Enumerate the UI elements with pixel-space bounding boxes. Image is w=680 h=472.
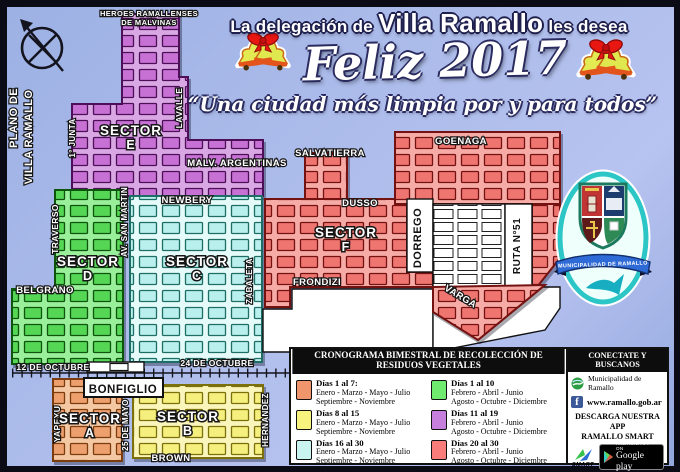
- street-label-salvatierra: SALVATIERRA: [295, 148, 365, 159]
- slogan-quote: “Una ciudad más limpia por y para todos”: [175, 92, 670, 116]
- sector-a-label: SECTOR: [59, 411, 121, 426]
- smart-logo-label: SMART: [572, 462, 594, 468]
- entry-months2: Agosto - Octubre - Diciembre: [451, 428, 547, 437]
- street-label-traverso: TRAVERSO: [50, 204, 60, 254]
- smart-logo-icon: [573, 447, 593, 462]
- municipality-row: Municipalidad de Ramallo: [568, 372, 667, 394]
- sector-c-letter: C: [192, 269, 202, 283]
- street-label-zabaleta: ZABALETA: [245, 258, 254, 304]
- street-label-dorrego: DORREGO: [412, 208, 424, 268]
- app-promo: DESCARGA NUESTRA APP RAMALLO SMART: [568, 412, 667, 442]
- street-label-frondizi: FRONDIZI: [293, 277, 341, 288]
- google-play-badge: ANDROID APP ON Google play: [599, 444, 664, 470]
- greeting-title: Feliz 2017: [269, 30, 600, 93]
- smart-app-logo: SMART: [571, 447, 595, 468]
- sector-c-label: SECTOR: [166, 254, 228, 269]
- street-label-dusso: DUSSO: [342, 198, 378, 209]
- color-swatch: [296, 380, 312, 400]
- sector-d-letter: D: [83, 269, 93, 283]
- globe-icon: [571, 377, 584, 390]
- legend-entry: Días 1 al 10 Febrero - Abril - Junio Ago…: [431, 377, 564, 407]
- street-label-heroes-2: DE MALVINAS: [121, 18, 177, 27]
- sector-b-label: SECTOR: [157, 409, 219, 424]
- play-badge-line2: Google play: [616, 451, 659, 472]
- sector-d-label: SECTOR: [57, 254, 119, 269]
- sector-e-letter: E: [126, 138, 135, 152]
- legend-entry: Días 1 al 7: Enero - Marzo - Mayo - Juli…: [296, 377, 429, 407]
- sector-e-label: SECTOR: [100, 123, 162, 138]
- street-label-junta: 1° JUNTA: [68, 118, 77, 157]
- street-label-25-mayo: 25 DE MAYO: [121, 399, 130, 451]
- street-label-san-martin: AV. SAN MARTIN: [120, 187, 129, 257]
- schedule-title: CRONOGRAMA BIMESTRAL DE RECOLECCIÓN DE R…: [292, 349, 564, 374]
- street-label-ruta51: RUTA N°51: [512, 218, 523, 274]
- street-label-hernandez: HERNANDEZ: [261, 393, 270, 447]
- sector-f-label: SECTOR: [315, 225, 377, 240]
- sector-a-letter: A: [85, 426, 95, 440]
- street-label-heroes-1: HEROES RAMALLENSES: [100, 9, 198, 18]
- sector-f-letter: F: [342, 240, 351, 254]
- play-triangle-icon: [604, 451, 613, 463]
- legend-entry: Días 20 al 30 Febrero - Abril - Junio Ag…: [431, 437, 564, 467]
- street-label-belgrano: BELGRANO: [16, 285, 74, 296]
- bottom-strip: CRONOGRAMA BIMESTRAL DE RECOLECCIÓN DE R…: [289, 347, 669, 465]
- color-swatch: [431, 410, 447, 430]
- street-label-malvinas: MALV. ARGENTINAS: [187, 158, 286, 169]
- connect-panel: CONECTATE Y BUSCANOS Municipalidad de Ra…: [568, 349, 667, 463]
- header-line1-prefix: La delegación de: [230, 17, 373, 36]
- map-title-line2: VILLA RAMALLO: [23, 90, 35, 185]
- entry-months2: Septiembre - Noviembre: [316, 398, 410, 407]
- legend-entry: Días 11 al 19 Febrero - Abril - Junio Ag…: [431, 407, 564, 437]
- app-badges-row: SMART ANDROID APP ON Google play: [568, 442, 667, 472]
- entry-months2: Agosto - Octubre - Diciembre: [451, 398, 547, 407]
- color-swatch: [296, 410, 312, 430]
- street-label-bonfiglio: BONFIGLIO: [89, 384, 157, 396]
- legend-entry: Días 16 al 30 Enero - Marzo - Mayo - Jul…: [296, 437, 429, 467]
- badge-shield: [580, 184, 626, 248]
- municipality-label: Municipalidad de Ramallo: [588, 374, 664, 392]
- color-swatch: [296, 440, 312, 460]
- municipal-badge: MUNICIPALIDAD DE RAMALLO: [554, 171, 652, 306]
- legend-entry: Días 8 al 15 Enero - Marzo - Mayo - Juli…: [296, 407, 429, 437]
- app-promo-line1: DESCARGA NUESTRA APP: [568, 412, 667, 432]
- sector-d-area: [12, 190, 123, 364]
- connect-title: CONECTATE Y BUSCANOS: [568, 349, 667, 372]
- color-swatch: [431, 440, 447, 460]
- color-swatch: [431, 380, 447, 400]
- website-row: f www.ramallo.gob.ar: [568, 394, 667, 410]
- street-label-24-octubre: 24 DE OCTUBRE: [180, 358, 253, 368]
- schedule-panel: CRONOGRAMA BIMESTRAL DE RECOLECCIÓN DE R…: [291, 349, 566, 463]
- facebook-icon: f: [571, 396, 583, 408]
- schedule-legend: Días 1 al 7: Enero - Marzo - Mayo - Juli…: [291, 374, 566, 469]
- entry-months2: Septiembre - Noviembre: [316, 428, 410, 437]
- compass-icon: [20, 19, 63, 71]
- street-label-newbery: NEWBERY: [161, 195, 212, 206]
- sector-b-letter: B: [183, 424, 193, 438]
- street-label-12-octubre: 12 DE OCTUBRE: [16, 362, 89, 372]
- poster: PLANO DE VILLA RAMALLO: [0, 0, 680, 472]
- street-label-brown: BROWN: [152, 453, 191, 464]
- play-badge-line1: ANDROID APP ON: [616, 441, 659, 452]
- website-url: www.ramallo.gob.ar: [587, 397, 662, 407]
- entry-months2: Septiembre - Noviembre: [316, 457, 410, 466]
- entry-months2: Agosto - Octubre - Diciembre: [451, 457, 547, 466]
- street-label-goenaga: GOENAGA: [435, 136, 487, 147]
- map-title-line1: PLANO DE: [8, 88, 20, 148]
